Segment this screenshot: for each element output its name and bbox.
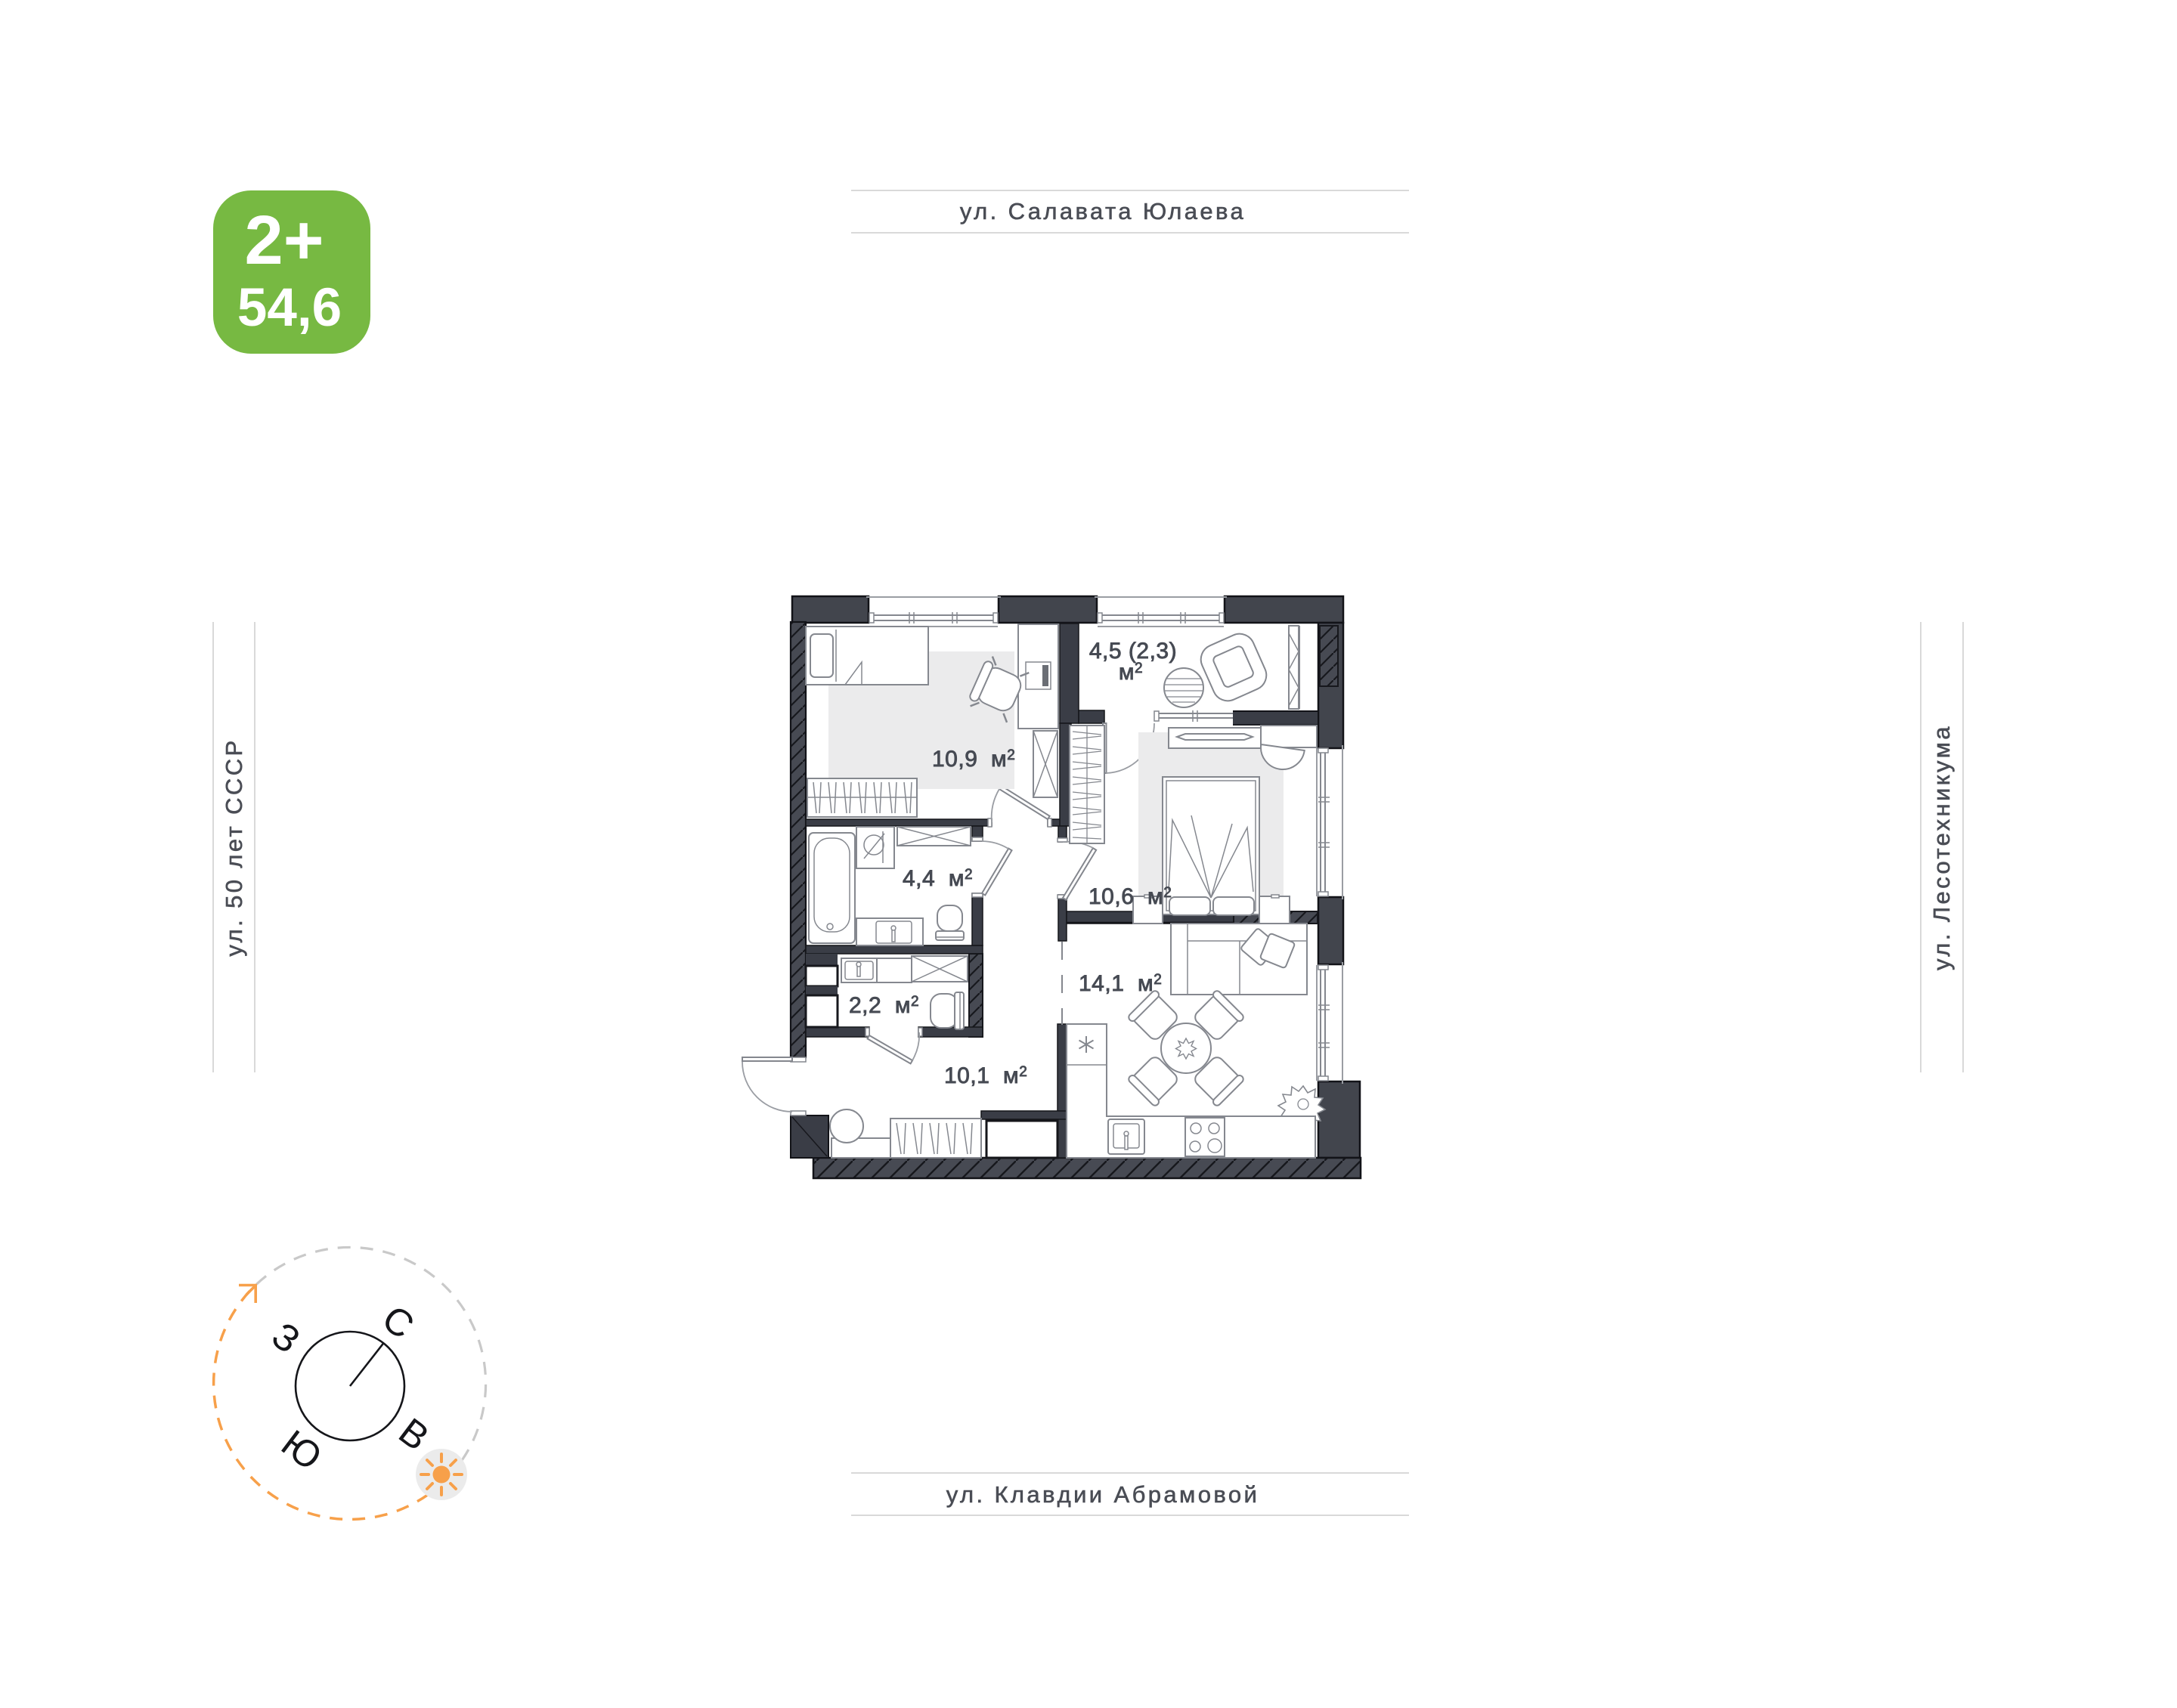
svg-text:ул. Салавата Юлаева: ул. Салавата Юлаева xyxy=(960,198,1246,224)
svg-text:ул. Клавдии Абрамовой: ул. Клавдии Абрамовой xyxy=(946,1481,1260,1508)
svg-text:54,6: 54,6 xyxy=(237,278,342,338)
svg-text:С: С xyxy=(375,1297,423,1347)
svg-text:З: З xyxy=(264,1314,308,1362)
svg-text:14,1 м2: 14,1 м2 xyxy=(1079,971,1162,996)
svg-text:10,9 м2: 10,9 м2 xyxy=(932,747,1015,772)
svg-text:10,6 м2: 10,6 м2 xyxy=(1088,884,1172,909)
svg-text:10,1 м2: 10,1 м2 xyxy=(944,1063,1027,1088)
svg-text:ул. 50 лет СССР: ул. 50 лет СССР xyxy=(221,738,247,956)
svg-text:2,2 м2: 2,2 м2 xyxy=(849,993,919,1018)
svg-text:2+: 2+ xyxy=(245,202,324,279)
svg-text:м2: м2 xyxy=(1119,660,1143,685)
svg-text:В: В xyxy=(392,1409,437,1459)
svg-text:4,4 м2: 4,4 м2 xyxy=(903,866,973,891)
svg-text:ул. Лесотехникума: ул. Лесотехникума xyxy=(1928,724,1955,970)
